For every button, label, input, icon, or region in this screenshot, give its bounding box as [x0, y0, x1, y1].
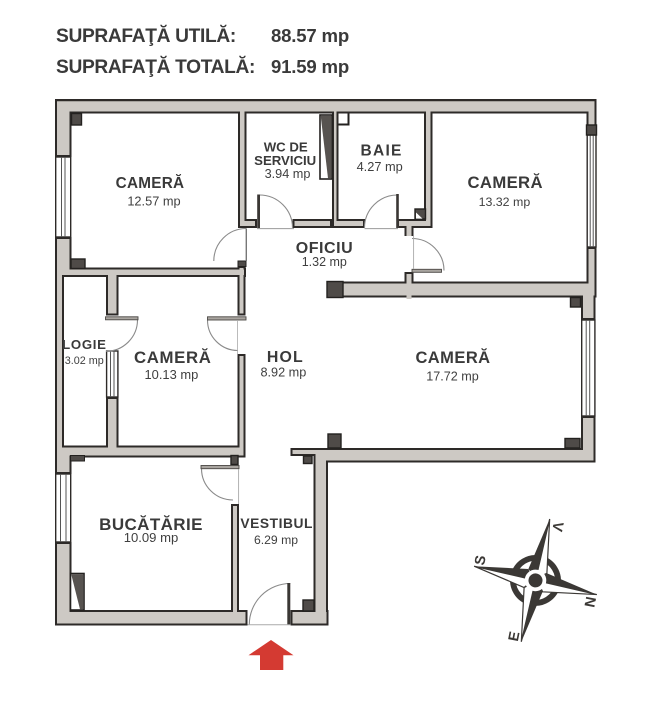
- svg-text:CAMERĂ: CAMERĂ: [116, 175, 185, 192]
- svg-text:SERVICIU: SERVICIU: [254, 153, 316, 168]
- svg-text:91.59 mp: 91.59 mp: [271, 56, 349, 77]
- svg-text:CAMERĂ: CAMERĂ: [415, 348, 490, 367]
- svg-text:BAIE: BAIE: [360, 142, 402, 159]
- svg-text:8.92 mp: 8.92 mp: [260, 366, 306, 380]
- svg-text:1.32 mp: 1.32 mp: [302, 255, 347, 269]
- svg-text:13.32 mp: 13.32 mp: [479, 195, 531, 209]
- svg-text:LOGIE: LOGIE: [62, 337, 107, 352]
- svg-text:VESTIBUL: VESTIBUL: [240, 516, 313, 531]
- svg-text:3.02 mp: 3.02 mp: [65, 355, 104, 367]
- svg-text:6.29 mp: 6.29 mp: [254, 533, 298, 547]
- svg-text:SUPRAFAŢĂ TOTALĂ:: SUPRAFAŢĂ TOTALĂ:: [56, 56, 255, 78]
- svg-text:CAMERĂ: CAMERĂ: [468, 173, 543, 192]
- svg-text:3.94 mp: 3.94 mp: [265, 167, 311, 181]
- svg-text:10.13 mp: 10.13 mp: [145, 367, 199, 382]
- svg-text:HOL: HOL: [267, 349, 304, 366]
- svg-text:4.27 mp: 4.27 mp: [357, 159, 403, 174]
- svg-text:17.72 mp: 17.72 mp: [426, 370, 479, 384]
- svg-text:88.57 mp: 88.57 mp: [271, 25, 349, 46]
- svg-text:12.57 mp: 12.57 mp: [127, 194, 180, 209]
- svg-text:10.09 mp: 10.09 mp: [124, 530, 179, 545]
- svg-text:CAMERĂ: CAMERĂ: [134, 348, 212, 367]
- svg-text:SUPRAFAŢĂ UTILĂ:: SUPRAFAŢĂ UTILĂ:: [56, 25, 236, 47]
